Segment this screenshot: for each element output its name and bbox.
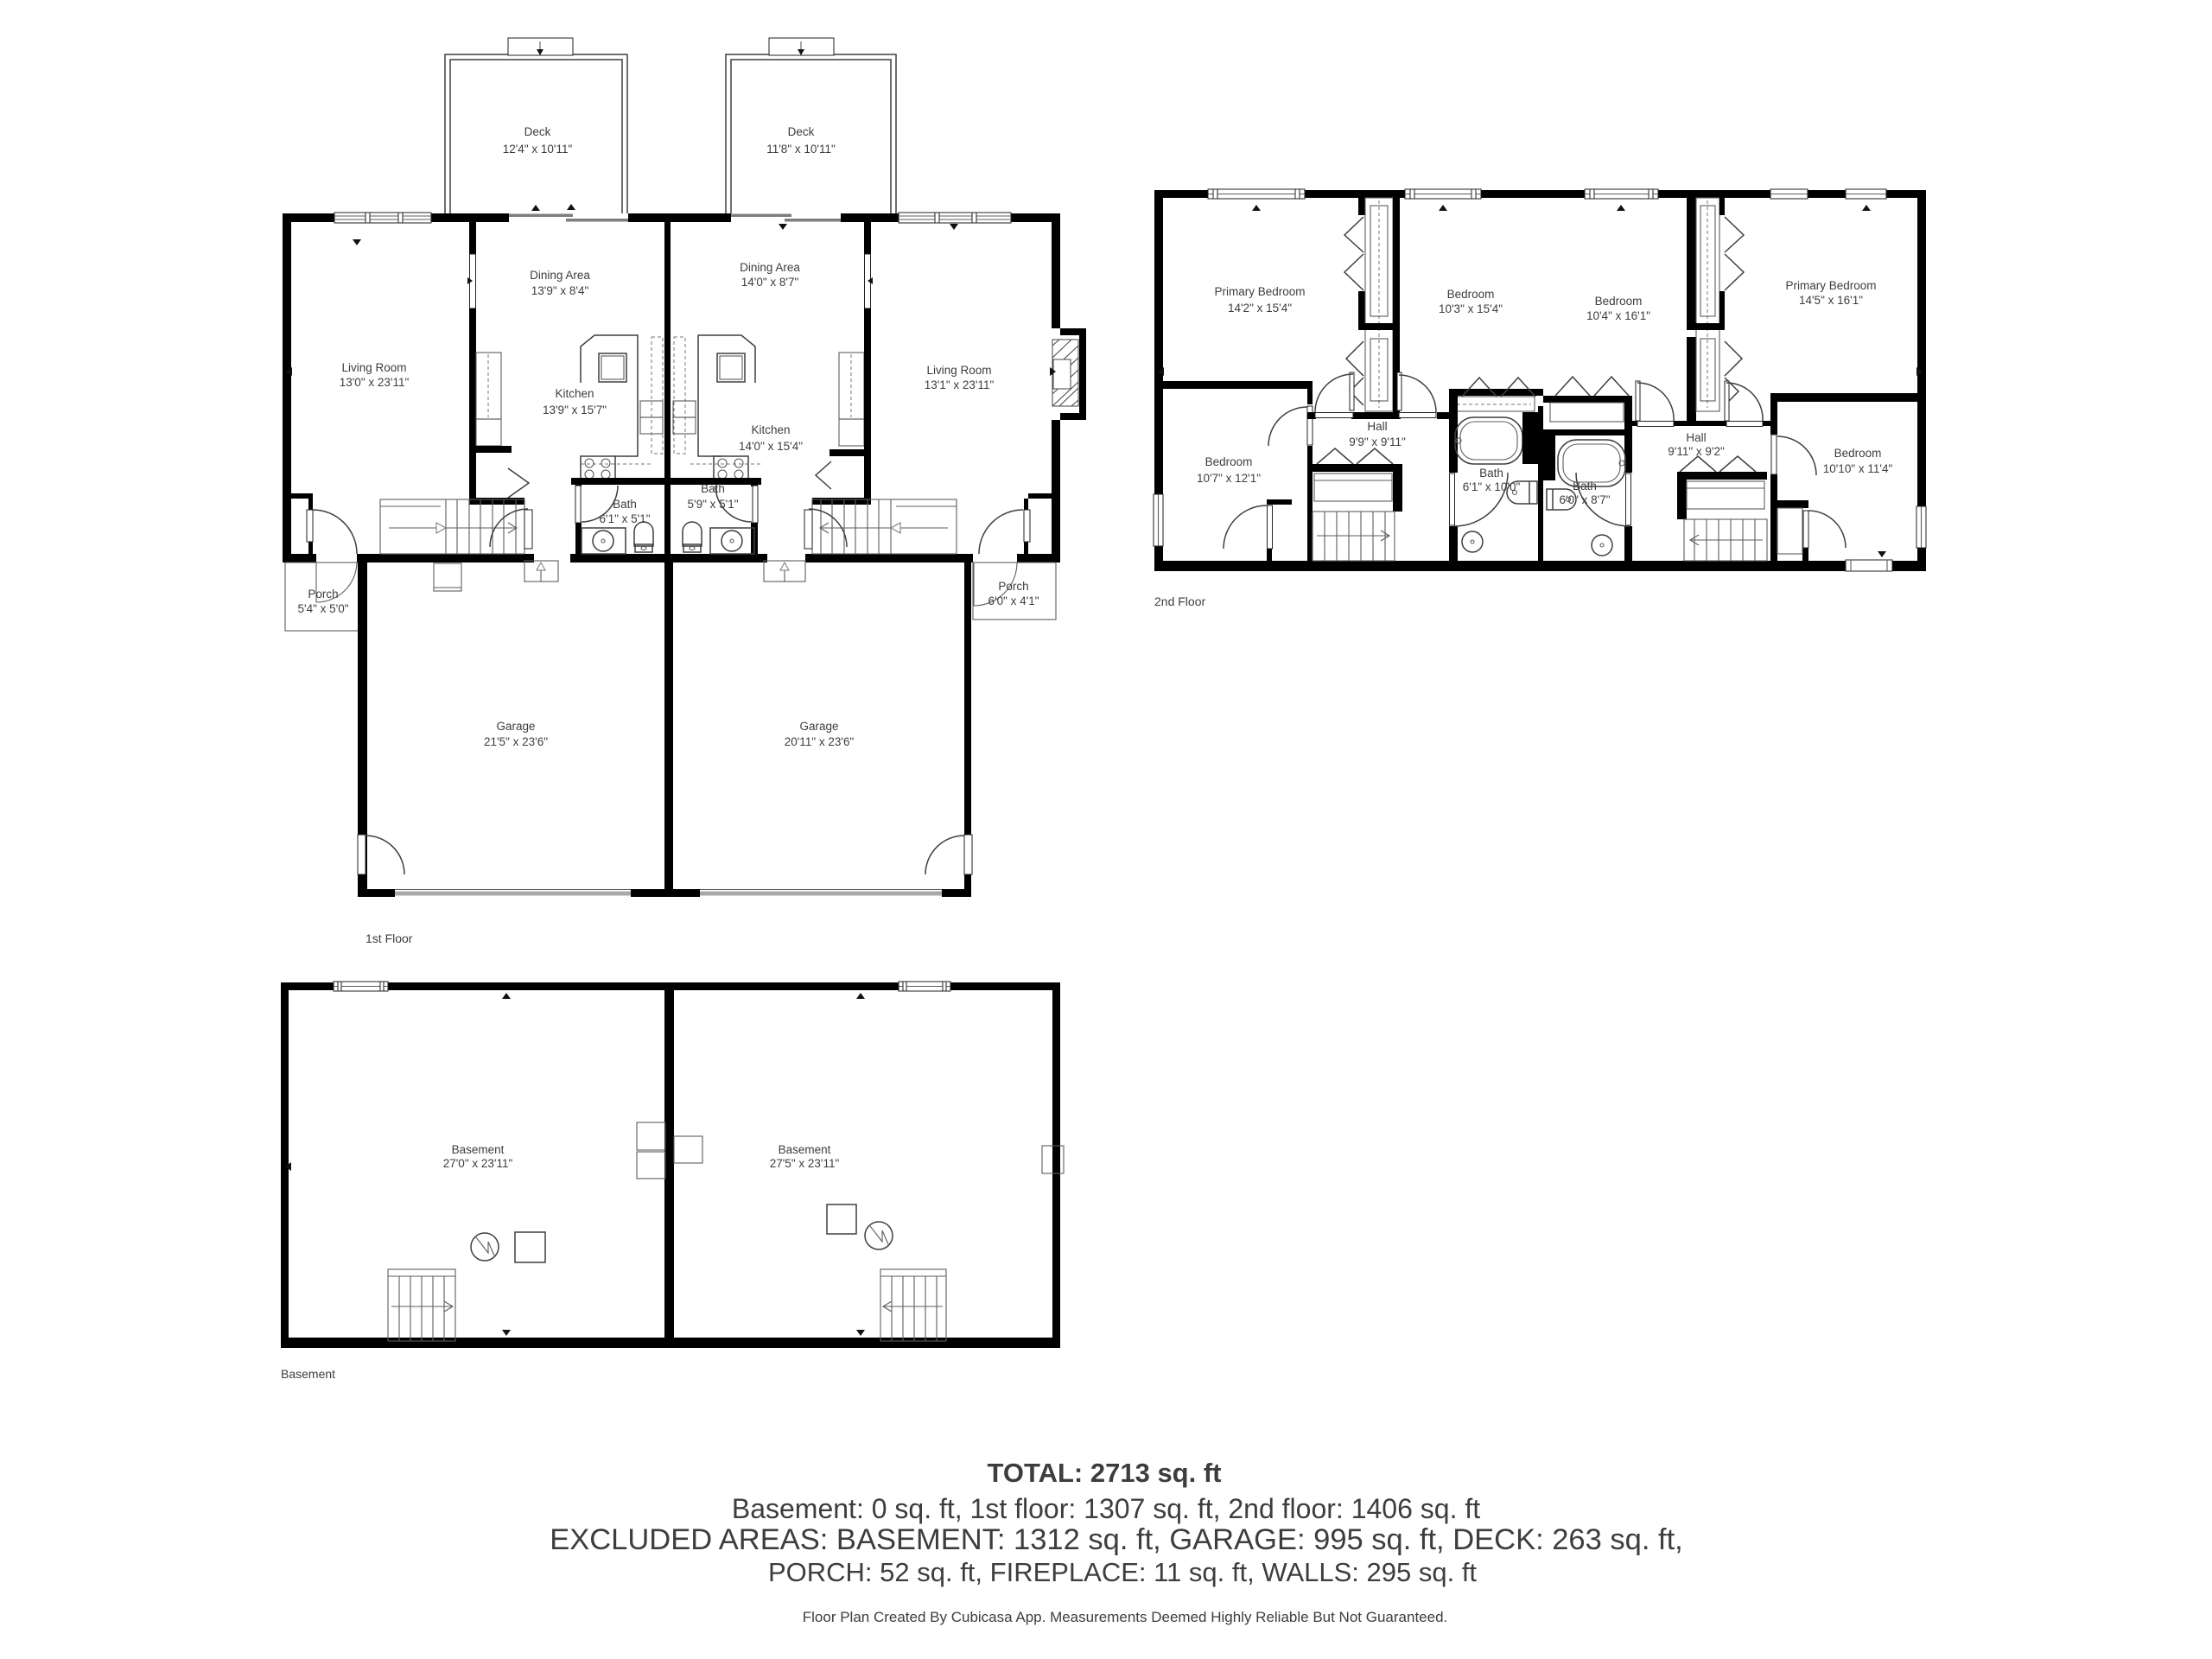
svg-text:21'5" x 23'6": 21'5" x 23'6" xyxy=(484,735,548,748)
svg-text:Living Room: Living Room xyxy=(341,361,406,374)
svg-text:13'0" x 23'11": 13'0" x 23'11" xyxy=(340,376,410,389)
svg-text:Floor Plan Created By Cubicasa: Floor Plan Created By Cubicasa App. Meas… xyxy=(803,1609,1448,1625)
svg-text:Primary Bedroom: Primary Bedroom xyxy=(1785,279,1876,292)
svg-text:Primary Bedroom: Primary Bedroom xyxy=(1214,285,1305,298)
svg-text:Bedroom: Bedroom xyxy=(1595,295,1643,308)
svg-text:6'0" x 4'1": 6'0" x 4'1" xyxy=(988,594,1039,607)
svg-text:10'4" x 16'1": 10'4" x 16'1" xyxy=(1586,309,1650,322)
svg-text:EXCLUDED AREAS: BASEMENT: 1312: EXCLUDED AREAS: BASEMENT: 1312 sq. ft, G… xyxy=(550,1523,1683,1556)
svg-text:Kitchen: Kitchen xyxy=(751,423,790,436)
svg-text:Bath: Bath xyxy=(701,482,725,495)
svg-text:14'0" x 8'7": 14'0" x 8'7" xyxy=(741,276,799,289)
svg-text:9'9" x 9'11": 9'9" x 9'11" xyxy=(1349,435,1406,448)
svg-text:Basement: 0 sq. ft, 1st floor:: Basement: 0 sq. ft, 1st floor: 1307 sq. … xyxy=(732,1493,1480,1524)
svg-text:Dining Area: Dining Area xyxy=(530,269,590,282)
svg-text:Porch: Porch xyxy=(998,580,1028,593)
svg-text:27'0" x 23'11": 27'0" x 23'11" xyxy=(443,1157,513,1170)
svg-text:13'9" x 15'7": 13'9" x 15'7" xyxy=(543,404,607,416)
svg-text:5'4" x 5'0": 5'4" x 5'0" xyxy=(297,602,348,615)
svg-text:Hall: Hall xyxy=(1686,431,1706,444)
svg-text:20'11" x 23'6": 20'11" x 23'6" xyxy=(785,735,855,748)
svg-text:5'9" x 5'1": 5'9" x 5'1" xyxy=(687,498,738,511)
svg-text:2nd Floor: 2nd Floor xyxy=(1154,594,1205,608)
svg-text:Basement: Basement xyxy=(281,1367,335,1381)
svg-text:13'1" x 23'11": 13'1" x 23'11" xyxy=(925,378,995,391)
svg-text:Garage: Garage xyxy=(799,720,838,733)
svg-text:Bath: Bath xyxy=(1479,467,1503,480)
svg-text:Deck: Deck xyxy=(788,125,815,138)
svg-text:Basement: Basement xyxy=(452,1143,505,1156)
svg-text:9'11" x 9'2": 9'11" x 9'2" xyxy=(1668,445,1725,458)
svg-text:1st Floor: 1st Floor xyxy=(365,931,413,945)
svg-text:Living Room: Living Room xyxy=(926,364,991,377)
svg-text:Deck: Deck xyxy=(524,125,551,138)
svg-text:10'3" x 15'4": 10'3" x 15'4" xyxy=(1439,302,1503,315)
svg-text:11'8" x 10'11": 11'8" x 10'11" xyxy=(766,143,836,156)
svg-text:13'9" x 8'4": 13'9" x 8'4" xyxy=(531,284,589,297)
svg-text:Porch: Porch xyxy=(308,588,338,601)
svg-text:Kitchen: Kitchen xyxy=(555,387,594,400)
svg-text:10'7" x 12'1": 10'7" x 12'1" xyxy=(1197,472,1261,485)
svg-text:27'5" x 23'11": 27'5" x 23'11" xyxy=(770,1157,840,1170)
svg-text:6'1" x 5'1": 6'1" x 5'1" xyxy=(599,512,650,525)
svg-text:Hall: Hall xyxy=(1367,420,1387,433)
svg-text:Dining Area: Dining Area xyxy=(740,261,800,274)
svg-text:TOTAL: 2713 sq. ft: TOTAL: 2713 sq. ft xyxy=(987,1458,1221,1488)
svg-text:Bedroom: Bedroom xyxy=(1447,288,1495,301)
svg-text:Basement: Basement xyxy=(779,1143,831,1156)
svg-text:PORCH: 52 sq. ft, FIREPLACE: 1: PORCH: 52 sq. ft, FIREPLACE: 11 sq. ft, … xyxy=(768,1557,1477,1587)
svg-text:Bedroom: Bedroom xyxy=(1834,447,1882,460)
svg-text:14'0" x 15'4": 14'0" x 15'4" xyxy=(739,440,803,453)
svg-text:14'5" x 16'1": 14'5" x 16'1" xyxy=(1799,294,1863,307)
svg-text:6'1" x 10'0": 6'1" x 10'0" xyxy=(1463,480,1521,493)
svg-text:Garage: Garage xyxy=(496,720,535,733)
svg-text:6'0" x 8'7": 6'0" x 8'7" xyxy=(1559,493,1610,506)
svg-text:12'4" x 10'11": 12'4" x 10'11" xyxy=(503,143,573,156)
svg-text:14'2" x 15'4": 14'2" x 15'4" xyxy=(1228,302,1292,315)
svg-text:Bedroom: Bedroom xyxy=(1205,455,1253,468)
svg-text:10'10" x 11'4": 10'10" x 11'4" xyxy=(1823,462,1893,475)
svg-text:Bath: Bath xyxy=(613,498,637,511)
